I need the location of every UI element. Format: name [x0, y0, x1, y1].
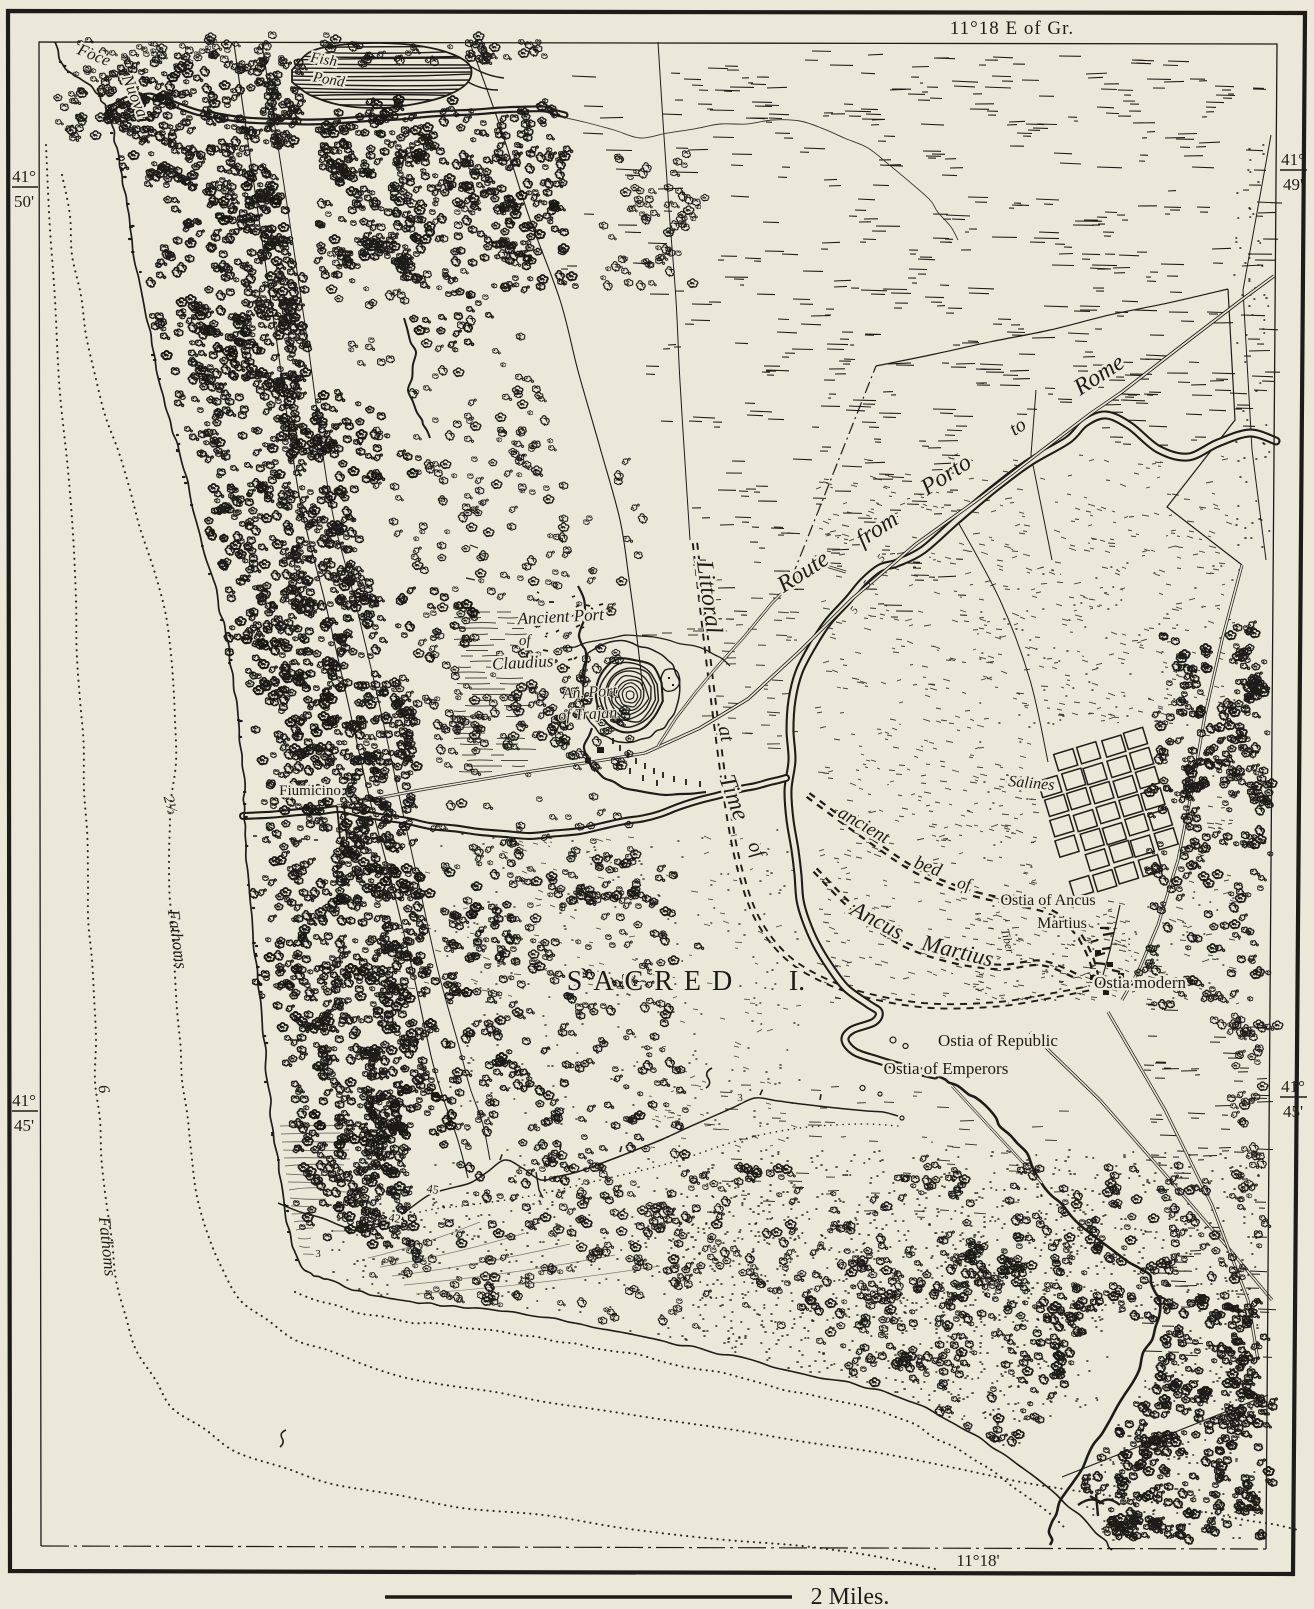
- svg-text:SACRED: SACRED: [567, 966, 743, 997]
- svg-text:45': 45': [14, 1116, 34, 1135]
- svg-text:Martius: Martius: [1037, 915, 1087, 932]
- svg-text:45: 45: [426, 1181, 440, 1197]
- svg-text:41°: 41°: [12, 1091, 36, 1110]
- svg-text:42: 42: [388, 1210, 402, 1226]
- svg-text:3: 3: [315, 1248, 321, 1260]
- svg-text:An. Port: An. Port: [561, 683, 618, 703]
- svg-text:Ostia of Ancus: Ostia of Ancus: [1000, 892, 1095, 909]
- svg-text:41°: 41°: [12, 167, 36, 186]
- svg-text:41°: 41°: [1281, 150, 1305, 169]
- svg-text:45': 45': [1283, 1102, 1303, 1121]
- svg-text:50': 50': [14, 192, 34, 211]
- svg-text:Ostia of Republic: Ostia of Republic: [938, 1031, 1058, 1050]
- svg-text:Fiumicino: Fiumicino: [279, 783, 341, 799]
- svg-text:2 Miles.: 2 Miles.: [811, 1584, 890, 1609]
- svg-text:49': 49': [1283, 175, 1303, 194]
- svg-text:Claudius: Claudius: [492, 651, 555, 673]
- svg-text:3: 3: [737, 1092, 743, 1104]
- svg-text:of Trajan: of Trajan: [558, 704, 618, 724]
- svg-text:11°18 E of Gr.: 11°18 E of Gr.: [950, 18, 1074, 39]
- svg-text:I.: I.: [789, 966, 805, 997]
- svg-text:41°: 41°: [1281, 1077, 1305, 1096]
- svg-text:Ostia modern: Ostia modern: [1094, 973, 1187, 992]
- svg-text:11°18': 11°18': [956, 1551, 999, 1570]
- svg-text:Ostia of Emperors: Ostia of Emperors: [884, 1059, 1009, 1078]
